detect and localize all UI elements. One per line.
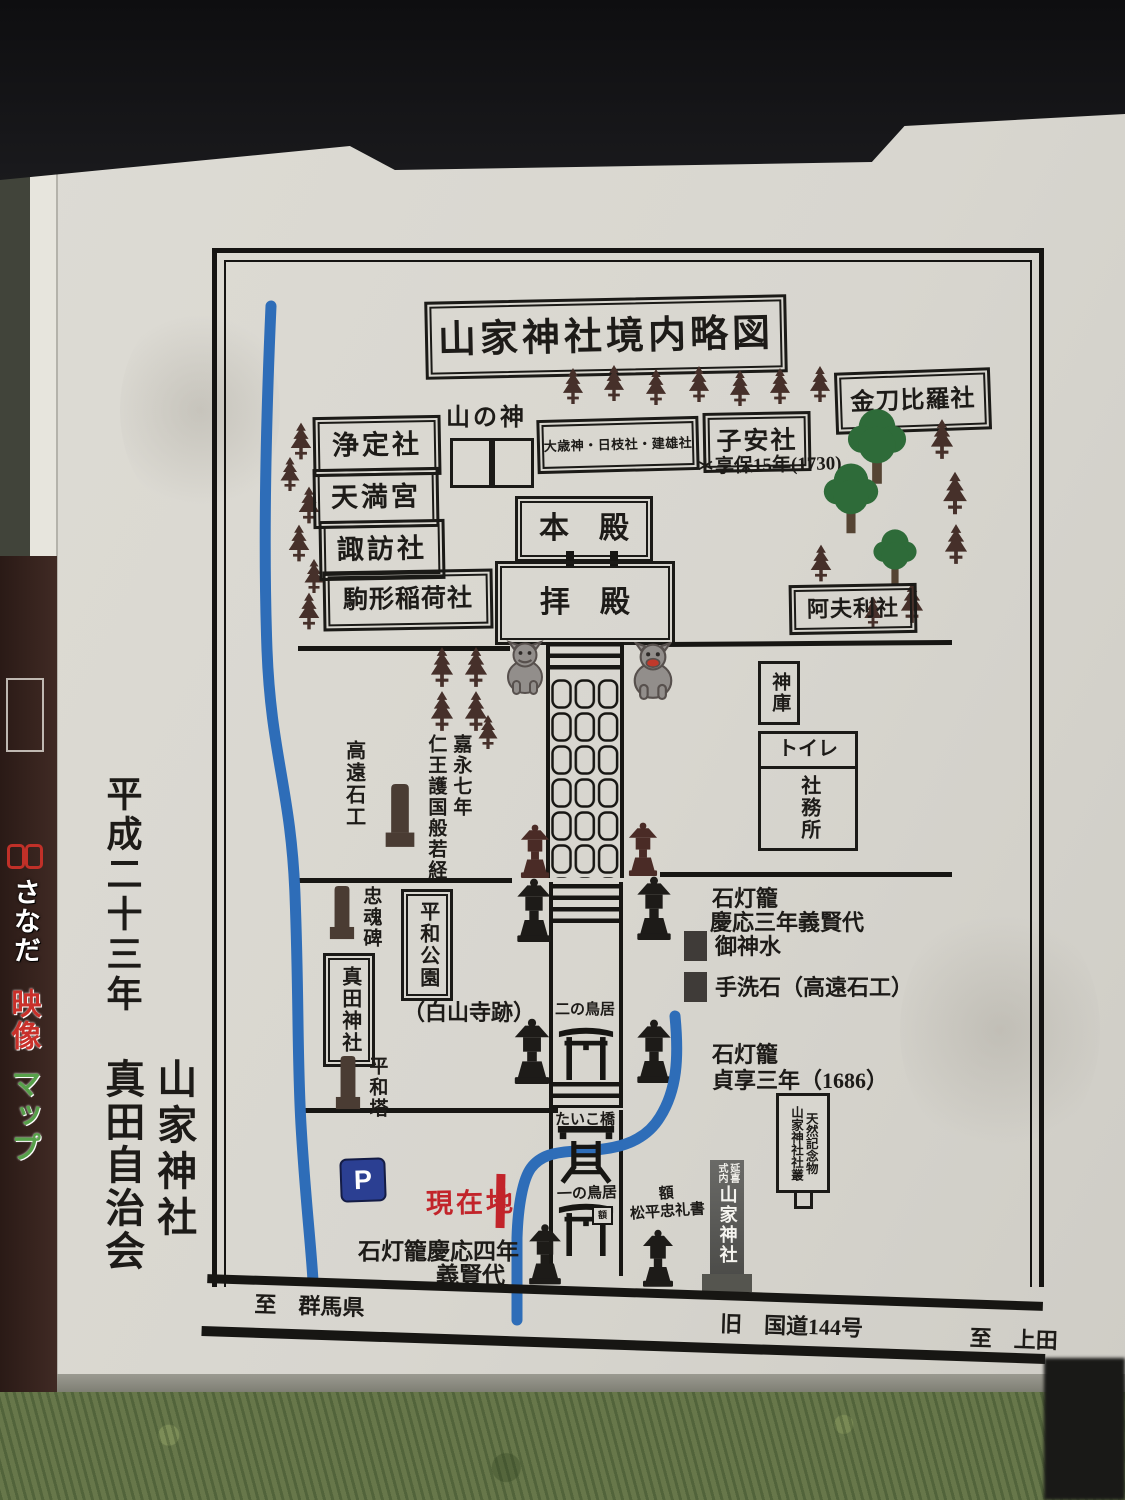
haiden-box: 拝 殿	[500, 566, 670, 640]
wood-lantern-icon	[626, 822, 660, 876]
tennen-kinenbutsu-signpost: 山家神社社叢 天然記念物	[776, 1093, 830, 1193]
ishidoro-jokyo-line2: 貞享三年（1686）	[712, 1068, 888, 1094]
komainu-statue-icon	[628, 642, 678, 700]
side-sign-eizo: 映像	[5, 988, 40, 1052]
chukonhi-label: 忠魂碑	[359, 886, 381, 950]
side-sign-map: マップ	[5, 1068, 40, 1164]
torii-plaque-label: 額	[598, 1210, 607, 1221]
torii-plaque: 額	[592, 1206, 613, 1225]
conifer-tree-icon	[601, 365, 627, 401]
sando-path-upper	[546, 642, 624, 878]
heiwato-label: 平和塔	[365, 1056, 387, 1116]
credit-organization: 真田自治会	[98, 1058, 145, 1273]
sando-path-middle: 二の鳥居	[549, 882, 623, 1108]
conifer-tree-icon	[462, 646, 490, 688]
pillar-engi-label: 延喜	[727, 1163, 739, 1183]
chozuishi-marker	[684, 972, 707, 1002]
conifer-tree-icon	[808, 543, 834, 583]
sanada-jinja-label: 真田神社	[337, 966, 361, 1054]
jotei-box: 浄定社	[318, 420, 437, 472]
nio-sutra-label: 仁王護国般若経	[424, 734, 446, 884]
grass	[0, 1392, 1125, 1500]
heiwa-koen-box: 平和公園	[406, 894, 448, 996]
koyasu-note: ＊享保15年(1730)	[696, 453, 842, 479]
jotei-label: 浄定社	[332, 429, 423, 462]
shrine-name-pillar: 式内 延喜 山家神社	[710, 1160, 744, 1276]
conifer-tree-icon	[767, 368, 793, 404]
conifer-tree-icon	[643, 369, 669, 405]
suwa-label: 諏訪社	[337, 533, 428, 566]
komagata-inari-box: 駒形稲荷社	[328, 574, 489, 627]
tennen-left-column: 山家神社社叢	[788, 1106, 803, 1181]
stone-steps	[550, 642, 620, 676]
stone-paving	[550, 678, 620, 878]
sanada-video-map-sign: さなだ 映像 マップ	[0, 556, 57, 1405]
signpost-leg	[794, 1190, 813, 1209]
stone-lantern-icon	[510, 1018, 554, 1084]
afuri-label: 阿夫利社	[807, 595, 899, 623]
afuri-box: 阿夫利社	[794, 588, 913, 630]
photo-of-shrine-map-sign: 山家神社境内略図 山の神 大歳神・日枝社・建雄社 子安社 ＊享保15年(1730…	[0, 0, 1125, 1500]
shinko-box: 神庫	[758, 661, 800, 725]
toilet-label: トイレ	[778, 738, 838, 762]
wood-lantern-icon	[518, 824, 552, 878]
suwa-box: 諏訪社	[324, 524, 441, 576]
conifer-tree-icon	[476, 714, 500, 750]
conifer-tree-icon	[560, 368, 586, 404]
conifer-tree-icon	[928, 418, 956, 460]
broadleaf-tree-icon	[872, 526, 918, 586]
conifer-tree-icon	[807, 366, 833, 402]
signpost-leg-right	[1044, 1358, 1125, 1500]
komainu-statue-icon	[502, 640, 548, 696]
shinko-label: 神庫	[768, 672, 790, 714]
ishidoro-keio3-line2: 慶応三年義賢代	[710, 910, 864, 936]
monument-icon	[332, 1056, 364, 1110]
conifer-tree-icon	[940, 470, 970, 516]
pillar-shrine-name: 山家神社	[716, 1185, 737, 1265]
monument-icon	[326, 886, 358, 940]
broadleaf-tree-icon	[822, 460, 880, 534]
divider-line	[298, 878, 512, 883]
parking-letter: P	[353, 1164, 372, 1196]
stone-steps	[553, 1082, 619, 1108]
side-sign-small-box	[6, 678, 44, 752]
stone-steps	[553, 884, 619, 928]
yamanokami-label: 山の神	[446, 404, 527, 432]
shamusho-label: 社務所	[796, 775, 820, 841]
to-gunma-label: 至 群馬県	[254, 1292, 365, 1322]
torii-icon	[558, 1024, 614, 1080]
conifer-tree-icon	[727, 370, 753, 406]
conifer-tree-icon	[288, 422, 314, 460]
conifer-tree-icon	[942, 522, 970, 566]
otoshi-box: 大歳神・日枝社・建雄社	[541, 421, 694, 469]
heiwa-koen-label: 平和公園	[415, 901, 439, 989]
sanada-jinja-box: 真田神社	[328, 958, 370, 1062]
conifer-tree-icon	[428, 646, 456, 688]
current-location-marker	[496, 1174, 506, 1228]
road-edge-line	[201, 1326, 1045, 1364]
map-title-box: 山家神社境内略図	[429, 299, 782, 374]
goshinsui-marker	[684, 931, 707, 961]
pillar-shikinai-label: 式内	[715, 1163, 727, 1183]
side-sign-sanada: さなだ	[8, 878, 40, 965]
credit-shrine: 山家神社	[150, 1058, 197, 1258]
to-ueda-label: 至 上田	[969, 1325, 1058, 1354]
credit-year: 平成二十三年	[100, 775, 142, 1025]
toilet-section: トイレ	[761, 734, 855, 769]
gaku-note: 額 松平忠礼書	[621, 1183, 713, 1225]
goshinsui-label: 御神水	[715, 934, 781, 960]
haiden-label: 拝 殿	[540, 585, 630, 620]
stone-lantern-icon	[632, 876, 676, 940]
ni-no-torii-label: 二の鳥居	[555, 1002, 615, 1020]
kaei-year-label: 嘉永七年	[449, 734, 471, 824]
parking-sign: P	[339, 1157, 387, 1203]
stone-lantern-icon	[512, 878, 556, 942]
tenmangu-label: 天満宮	[331, 481, 422, 514]
yamanokami-hokora-square	[450, 438, 492, 488]
logo-dots-icon	[7, 844, 25, 869]
conifer-tree-icon	[286, 524, 312, 562]
taiko-bridge-icon	[557, 1126, 615, 1186]
yamanokami-hokora-square	[492, 438, 534, 488]
stone-lantern-icon	[634, 1018, 674, 1084]
conifer-tree-icon	[302, 558, 326, 594]
conifer-tree-icon	[428, 690, 456, 732]
honden-box: 本 殿	[520, 501, 648, 557]
otoshi-label: 大歳神・日枝社・建雄社	[544, 435, 693, 454]
conifer-tree-icon	[686, 366, 712, 402]
tenmangu-box: 天満宮	[318, 472, 435, 524]
ishidoro-keio3-line1: 石灯籠	[712, 886, 778, 912]
divider-line	[660, 872, 952, 877]
ishidoro-jokyo-line1: 石灯籠	[712, 1042, 778, 1068]
shamusho-box: トイレ 社務所	[758, 731, 858, 851]
takato-sekko-label: 高遠石工	[341, 740, 365, 835]
logo-dots-icon	[25, 844, 43, 869]
koyasu-label: 子安社	[716, 427, 798, 458]
conifer-tree-icon	[296, 592, 322, 630]
komagata-inari-label: 駒形稲荷社	[343, 584, 474, 616]
map-title: 山家神社境内略図	[438, 311, 775, 363]
tennen-right-column: 天然記念物	[803, 1112, 818, 1175]
route-144-label: 旧 国道144号	[720, 1311, 864, 1342]
honden-label: 本 殿	[539, 511, 629, 546]
chozuishi-label: 手洗石（高遠石工）	[715, 975, 913, 1001]
monument-icon	[380, 784, 420, 848]
